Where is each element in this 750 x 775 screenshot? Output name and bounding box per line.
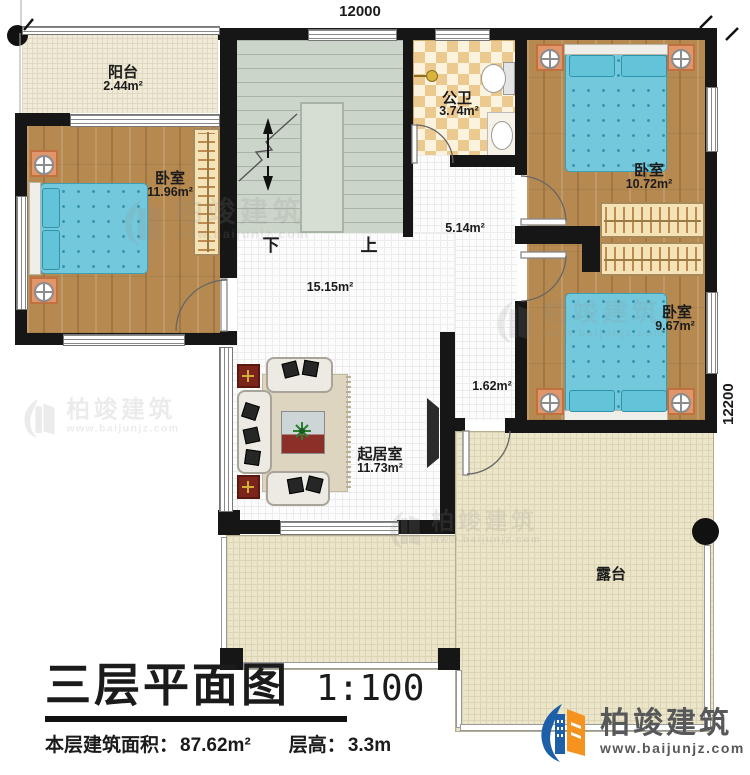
wall <box>220 40 237 278</box>
dimension-top: 12000 <box>339 3 381 20</box>
wall <box>218 520 280 534</box>
bed-pillow <box>569 55 615 77</box>
wall <box>582 226 600 272</box>
floor-plan-canvas: 柏竣建筑 www.baijunjz.com 柏竣建筑 www.baijunjz.… <box>0 0 750 775</box>
stair-label-up: 上 <box>361 231 378 256</box>
wall <box>15 113 70 126</box>
window <box>16 196 28 310</box>
rug-fringe <box>346 376 351 488</box>
floor-height-label: 层高： <box>289 735 346 756</box>
plan-title: 三层平面图 <box>45 662 290 708</box>
wall <box>515 301 527 420</box>
end-table <box>237 364 260 388</box>
floor-height-value: 3.3m <box>348 735 391 756</box>
window <box>706 87 718 152</box>
bed-pillow <box>621 390 667 412</box>
coffee-table <box>281 411 325 454</box>
terrace-railing <box>221 537 227 650</box>
bed-pillow <box>42 230 60 270</box>
window <box>308 29 397 41</box>
room-area-bedroom-right: 9.67m² <box>655 319 695 333</box>
nightstand <box>536 44 564 71</box>
window <box>63 334 185 346</box>
room-area-hall-center: 15.15m² <box>307 280 354 294</box>
extension-lines <box>20 0 21 113</box>
terrace-left-floor <box>226 535 462 670</box>
bed-pillow <box>569 390 615 412</box>
nightstand <box>30 150 58 177</box>
room-area-bathroom: 3.74m² <box>439 104 479 118</box>
wall <box>450 155 515 167</box>
room-area-bedroom-left: 11.96m² <box>147 185 193 199</box>
sofa-loveseat <box>266 357 333 393</box>
wall <box>505 418 527 433</box>
floor-area-value: 87.62m² <box>180 735 251 756</box>
wall <box>403 28 413 237</box>
end-table <box>237 475 260 499</box>
wall <box>515 28 527 175</box>
toilet-icon <box>481 64 506 93</box>
wall <box>440 418 465 431</box>
watermark-logo-icon <box>22 396 60 437</box>
nightstand <box>30 277 58 304</box>
company-name: 柏竣建筑 <box>600 707 745 740</box>
nightstand <box>536 388 564 415</box>
stair-label-down: 下 <box>263 231 280 256</box>
wall <box>515 420 715 433</box>
sofa-pillow <box>302 360 319 377</box>
terrace-right-floor <box>455 431 714 732</box>
bed-pillow <box>621 55 667 77</box>
nightstand <box>667 44 695 71</box>
room-area-living: 11.73m² <box>357 461 403 475</box>
company-logo: 柏竣建筑 www.baijunjz.com <box>538 700 745 762</box>
plan-scale: 1:100 <box>316 670 424 708</box>
title-block: 三层平面图 1:100 本层建筑面积：87.62m²层高：3.3m <box>45 662 424 757</box>
sofa-pillow <box>244 449 261 466</box>
window <box>706 292 718 374</box>
plan-info-row: 本层建筑面积：87.62m²层高：3.3m <box>45 730 424 757</box>
room-area-bedroom-top-right: 10.72m² <box>626 177 673 191</box>
watermark-name: 柏竣建筑 <box>66 398 179 422</box>
sofa-pillow <box>287 477 304 494</box>
dimension-right: 12200 <box>720 383 737 425</box>
company-url: www.baijunjz.com <box>600 740 745 756</box>
room-area-corridor: 1.62m² <box>472 379 512 393</box>
room-label-terrace: 露台 <box>596 563 626 584</box>
watermark: 柏竣建筑 www.baijunjz.com <box>22 396 179 437</box>
balcony-railing <box>22 26 220 35</box>
title-underline <box>45 716 347 722</box>
bed-headboard <box>29 182 41 275</box>
window <box>435 29 490 41</box>
floor-area-label: 本层建筑面积： <box>45 735 178 756</box>
watermark-url: www.baijunjz.com <box>66 421 179 435</box>
window <box>280 521 399 535</box>
balcony-sliding-door <box>70 114 220 127</box>
sofa-pillow <box>243 427 261 445</box>
terrace-railing <box>456 670 462 728</box>
bed-pillow <box>42 188 60 228</box>
wardrobe <box>600 202 705 238</box>
room-area-hallway: 5.14m² <box>445 221 485 235</box>
wardrobe <box>600 242 705 276</box>
stair-well <box>300 102 344 233</box>
nightstand <box>667 388 695 415</box>
wardrobe <box>193 128 220 256</box>
corridor-floor <box>455 250 517 420</box>
terrace-round-column <box>692 518 719 545</box>
window <box>219 347 233 512</box>
company-logo-icon <box>538 700 592 762</box>
room-area-balcony: 2.44m² <box>103 79 143 93</box>
terrace-column <box>438 648 460 670</box>
wall <box>440 332 455 534</box>
sink-icon <box>491 121 513 150</box>
shower-head-icon <box>426 70 438 82</box>
bed-headboard <box>564 44 668 55</box>
